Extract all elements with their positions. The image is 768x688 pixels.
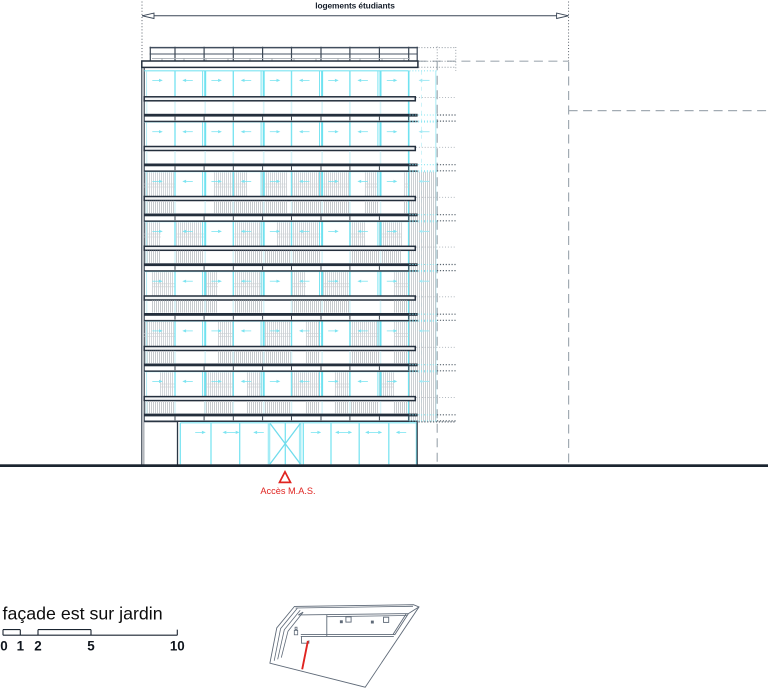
- svg-text:1: 1: [17, 638, 25, 653]
- svg-text:2: 2: [34, 638, 41, 653]
- svg-text:logements étudiants: logements étudiants: [315, 0, 395, 10]
- svg-text:10: 10: [170, 638, 185, 653]
- svg-text:0: 0: [0, 638, 7, 653]
- svg-text:5: 5: [87, 638, 95, 653]
- svg-text:Accès M.A.S.: Accès M.A.S.: [260, 486, 315, 496]
- svg-text:façade est sur jardin: façade est sur jardin: [3, 603, 163, 623]
